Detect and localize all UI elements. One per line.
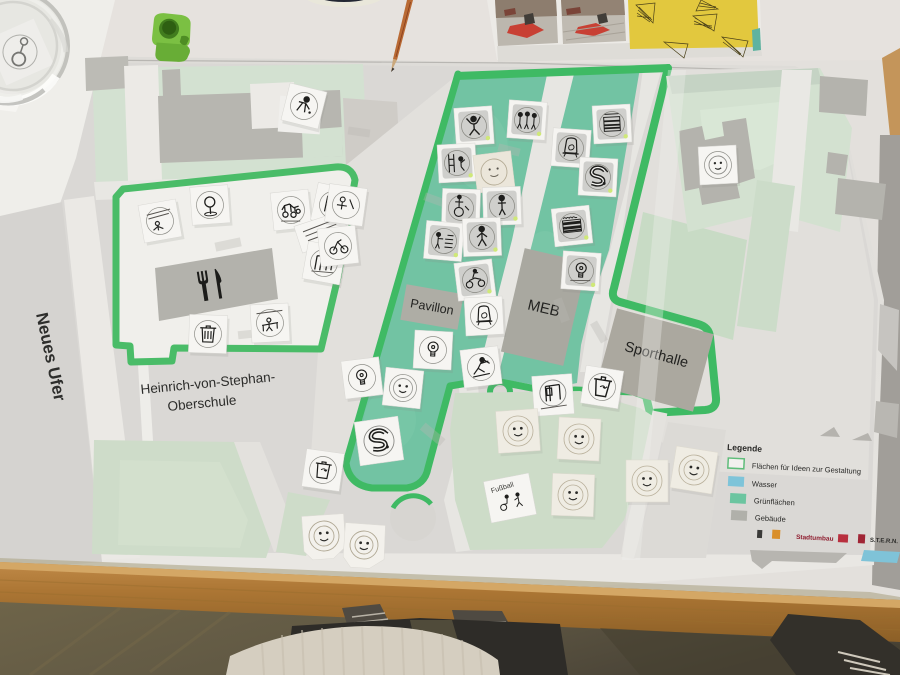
svg-text:Wasser: Wasser xyxy=(752,479,778,489)
svg-text:Gebäude: Gebäude xyxy=(755,513,786,524)
svg-text:Legende: Legende xyxy=(727,442,763,454)
